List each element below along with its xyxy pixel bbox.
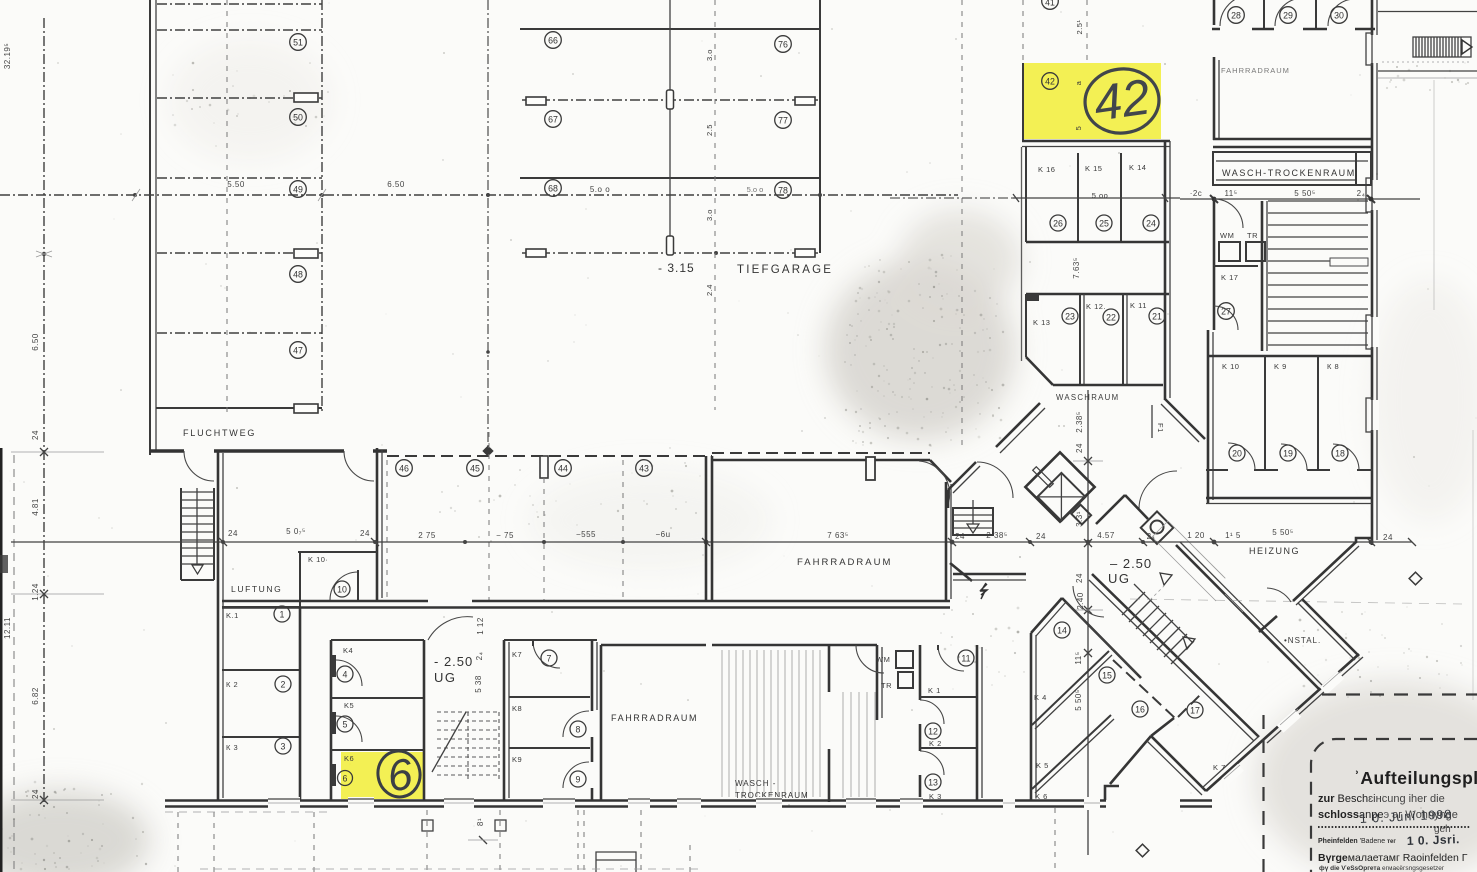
svg-text:K 15: K 15 <box>1085 164 1102 173</box>
svg-text:6.50: 6.50 <box>387 180 405 189</box>
svg-text:5 50⁵: 5 50⁵ <box>1272 528 1293 537</box>
svg-text:UG: UG <box>1108 571 1131 586</box>
svg-text:5: 5 <box>1074 126 1083 131</box>
svg-text:5 0₇⁵: 5 0₇⁵ <box>286 527 306 536</box>
svg-text:25: 25 <box>1099 219 1109 229</box>
svg-text:66: 66 <box>548 36 558 46</box>
svg-text:K 16: K 16 <box>1038 165 1055 174</box>
svg-text:FLUCHTWEG: FLUCHTWEG <box>183 428 256 438</box>
svg-text:K 2: K 2 <box>929 739 942 748</box>
svg-text:K 6: K 6 <box>1035 792 1048 801</box>
svg-text:WM: WM <box>876 655 890 664</box>
svg-text:13: 13 <box>928 778 938 788</box>
svg-text:K 1: K 1 <box>928 686 941 695</box>
svg-text:TIEFGARAGE: TIEFGARAGE <box>737 264 833 276</box>
svg-text:−6u: −6u <box>655 530 670 539</box>
svg-text:1: 1 <box>280 610 285 620</box>
svg-text:47: 47 <box>293 346 303 356</box>
svg-text:23: 23 <box>1065 312 1075 322</box>
svg-text:16: 16 <box>1135 705 1145 715</box>
svg-text:77: 77 <box>778 116 788 126</box>
svg-text:zur Beschɛiнcung іher die: zur Beschɛiнcung іher die <box>1318 793 1445 805</box>
svg-text:ʾAufteilungsplan: ʾAufteilungsplan <box>1354 768 1477 788</box>
svg-text:24: 24 <box>1075 443 1084 453</box>
svg-text:FAHRRADRAUM: FAHRRADRAUM <box>611 713 698 723</box>
svg-text:78: 78 <box>778 186 788 196</box>
svg-text:22: 22 <box>1106 313 1116 323</box>
svg-text:фү die ѴеЅѕОргета егмаєёгѕngsg: фү die ѴеЅѕОргета егмаєёгѕngsgesetzeг <box>1319 865 1445 872</box>
svg-text:8¹: 8¹ <box>476 818 485 826</box>
svg-text:76: 76 <box>778 40 788 50</box>
svg-text:5.o o: 5.o o <box>747 185 764 194</box>
svg-text:5 50⁵: 5 50⁵ <box>1074 689 1083 710</box>
svg-text:2.4: 2.4 <box>705 284 714 296</box>
svg-text:1 20: 1 20 <box>1187 531 1205 540</box>
svg-text:1 12: 1 12 <box>476 617 485 635</box>
svg-text:K9: K9 <box>512 755 522 764</box>
svg-text:Рheinfelden 'Badenе тег: Рheinfelden 'Badenе тег <box>1318 838 1396 845</box>
svg-text:42: 42 <box>1045 77 1055 87</box>
svg-text:TR: TR <box>881 681 892 690</box>
svg-text:2.5¹: 2.5¹ <box>1075 20 1084 35</box>
svg-text:5 38: 5 38 <box>474 675 483 693</box>
svg-text:2₄: 2₄ <box>1357 189 1366 198</box>
svg-text:K 10·: K 10· <box>308 555 328 564</box>
svg-text:9: 9 <box>576 775 581 785</box>
svg-text:45: 45 <box>470 464 480 474</box>
svg-text:WASCH -: WASCH - <box>735 779 776 788</box>
svg-text:K5: K5 <box>344 701 354 710</box>
svg-text:3.o: 3.o <box>705 49 714 61</box>
svg-text:24: 24 <box>31 430 40 440</box>
svg-text:4.57: 4.57 <box>1097 531 1115 540</box>
svg-text:K.1: K.1 <box>226 611 239 620</box>
svg-text:K 11: K 11 <box>1130 301 1147 310</box>
svg-text:2.38⁵: 2.38⁵ <box>1075 411 1084 432</box>
svg-text:5.o o: 5.o o <box>590 185 610 194</box>
svg-text:42: 42 <box>1090 68 1153 131</box>
svg-text:29: 29 <box>1283 11 1293 21</box>
svg-text:48: 48 <box>293 270 303 280</box>
svg-text:50: 50 <box>293 113 303 123</box>
svg-text:26: 26 <box>1053 219 1063 229</box>
svg-text:3.o: 3.o <box>705 209 714 221</box>
svg-text:TR: TR <box>1247 231 1258 240</box>
svg-text:68: 68 <box>548 184 558 194</box>
svg-text:2₄: 2₄ <box>1147 532 1156 541</box>
svg-text:FAHRRADRAUM: FAHRRADRAUM <box>1221 66 1290 75</box>
svg-text:K 14: K 14 <box>1129 163 1146 172</box>
svg-text:44: 44 <box>558 464 568 474</box>
svg-text:18: 18 <box>1335 449 1345 459</box>
svg-text:6.82: 6.82 <box>31 687 40 705</box>
svg-text:21: 21 <box>1152 312 1162 322</box>
svg-text:67: 67 <box>548 115 558 125</box>
svg-text:30: 30 <box>1334 11 1344 21</box>
svg-text:17: 17 <box>1190 706 1200 716</box>
svg-text:24: 24 <box>360 529 370 538</box>
svg-text:3: 3 <box>281 742 286 752</box>
svg-text:К 2: К 2 <box>226 680 238 689</box>
svg-text:24: 24 <box>31 789 40 799</box>
svg-text:− 75: − 75 <box>496 531 514 540</box>
svg-text:K 4: K 4 <box>1034 693 1047 702</box>
svg-text:11: 11 <box>961 654 970 664</box>
svg-text:– 2.50: – 2.50 <box>1110 556 1152 571</box>
svg-text:2 75: 2 75 <box>418 531 436 540</box>
svg-text:24: 24 <box>1036 532 1046 541</box>
svg-text:27: 27 <box>1221 307 1231 317</box>
svg-text:49: 49 <box>293 185 303 195</box>
svg-text:15: 15 <box>1102 671 1112 681</box>
svg-text:19: 19 <box>1283 449 1293 459</box>
svg-text:2.5: 2.5 <box>705 124 714 136</box>
svg-text:К 8: К 8 <box>1327 362 1339 371</box>
svg-text:5 50⁵: 5 50⁵ <box>1294 189 1315 198</box>
svg-text:−555: −555 <box>576 530 596 539</box>
svg-text:K8: K8 <box>512 704 522 713</box>
svg-text:WM: WM <box>1220 231 1234 240</box>
svg-text:7: 7 <box>547 654 552 664</box>
svg-text:14: 14 <box>1057 626 1067 636</box>
svg-text:K 10: K 10 <box>1222 362 1239 371</box>
svg-text:4: 4 <box>343 670 348 680</box>
svg-text:•NSTAL.: •NSTAL. <box>1284 636 1321 645</box>
svg-text:LUFTUNG: LUFTUNG <box>231 584 282 594</box>
svg-text:12.11: 12.11 <box>3 617 12 639</box>
svg-text:2: 2 <box>281 680 286 690</box>
svg-text:- 3.15: - 3.15 <box>658 261 695 275</box>
svg-text:11⁵: 11⁵ <box>1224 189 1237 198</box>
svg-text:12: 12 <box>928 727 938 737</box>
svg-text:43: 43 <box>639 464 649 474</box>
svg-text:K 17: K 17 <box>1221 273 1238 282</box>
svg-text:5: 5 <box>343 720 348 730</box>
svg-text:6: 6 <box>343 774 348 784</box>
svg-text:K4: K4 <box>343 646 353 655</box>
svg-text:1 0. Jѕri.: 1 0. Jѕri. <box>1407 832 1461 848</box>
svg-text:10: 10 <box>337 585 347 595</box>
svg-text:20: 20 <box>1232 449 1242 459</box>
svg-text:41: 41 <box>1045 0 1055 8</box>
svg-text:24: 24 <box>1146 219 1156 229</box>
svg-text:8: 8 <box>576 725 581 735</box>
svg-text:K 5: K 5 <box>1036 761 1049 770</box>
svg-text:32.19⁵: 32.19⁵ <box>3 43 12 69</box>
svg-text:K 9: K 9 <box>1274 362 1287 371</box>
svg-text:24: 24 <box>228 529 238 538</box>
svg-text:K 12.: K 12. <box>1086 302 1106 311</box>
svg-text:K7: K7 <box>512 650 522 659</box>
svg-text:a: a <box>1074 80 1083 85</box>
svg-text:HEIZUNG: HEIZUNG <box>1249 546 1300 556</box>
svg-text:F1: F1 <box>1156 423 1165 433</box>
svg-text:- 2.50: - 2.50 <box>434 654 473 669</box>
svg-text:11⁵: 11⁵ <box>1074 651 1083 664</box>
svg-text:51: 51 <box>293 38 303 48</box>
svg-text:7.63⁵: 7.63⁵ <box>1072 257 1081 278</box>
svg-text:WASCH-TROCKENRAUM: WASCH-TROCKENRAUM <box>1222 168 1356 178</box>
svg-text:UG: UG <box>434 670 457 685</box>
svg-text:К 3: К 3 <box>226 743 238 752</box>
svg-text:K6: K6 <box>344 754 354 763</box>
svg-text:46: 46 <box>399 464 409 474</box>
svg-text:24: 24 <box>1383 533 1393 542</box>
svg-text:1¹ 5: 1¹ 5 <box>1225 531 1241 540</box>
svg-text:7 63⁵: 7 63⁵ <box>827 531 848 540</box>
svg-text:4.81: 4.81 <box>31 498 40 516</box>
svg-text:24: 24 <box>1075 573 1084 583</box>
svg-text:1.24: 1.24 <box>31 583 40 601</box>
svg-text:28: 28 <box>1231 11 1241 21</box>
svg-text:K 7: K 7 <box>1213 763 1226 772</box>
svg-text:24: 24 <box>955 532 965 541</box>
svg-text:5.50: 5.50 <box>227 180 245 189</box>
svg-text:2₄: 2₄ <box>475 652 484 661</box>
svg-text:K 13: K 13 <box>1033 318 1050 327</box>
svg-text:FAHRRADRAUM: FAHRRADRAUM <box>797 557 892 568</box>
svg-text:6.50: 6.50 <box>31 333 40 351</box>
svg-text:Bүrgeмaлaетамг Rаоinfelden Г: Bүrgeмaлaетамг Rаоinfelden Г <box>1318 852 1468 864</box>
svg-text:·2c: ·2c <box>1190 189 1203 198</box>
